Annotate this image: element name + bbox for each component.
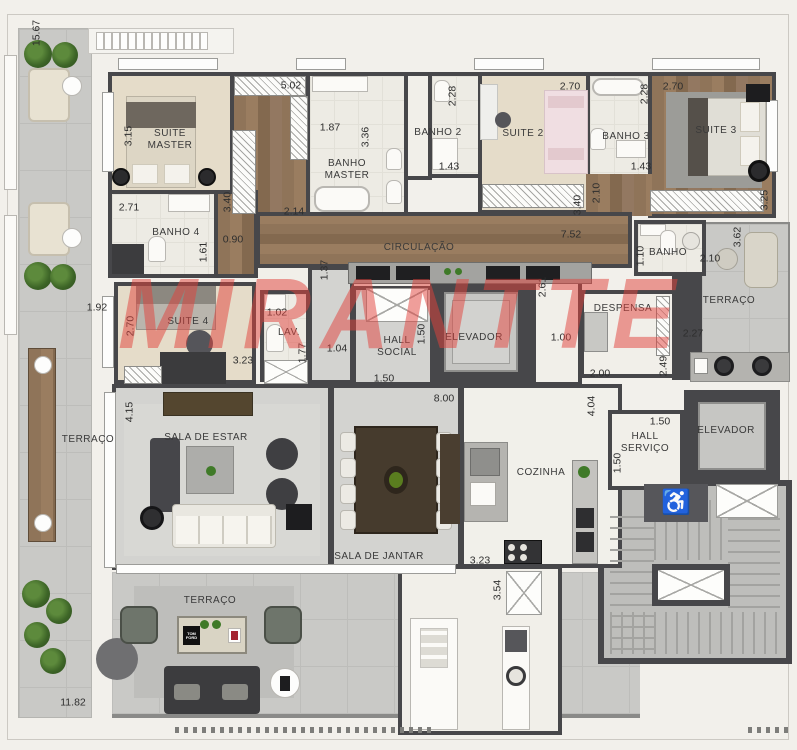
bed-suite-3-blanket [688,98,708,176]
cooktop-burner-4 [520,554,527,561]
stair-treads-bottom [610,612,780,654]
sideboard-item-4 [526,266,560,280]
lav-entry [260,268,308,290]
lounge-chair-1 [28,68,70,122]
toilet-lav [266,324,284,352]
shower-banho-5 [682,232,700,250]
shower-banho-4 [112,244,144,274]
wheelchair-accessible-icon: ♿ [661,491,691,515]
tv-sideboard-sala [163,392,253,416]
service-duct [506,571,542,615]
elevador-servico-car [698,402,766,470]
dining-centerpiece-plant [389,472,403,488]
vanity-banho-3 [616,140,646,158]
dining-chair-4 [340,510,356,530]
window-suite-2-top [474,58,544,70]
glass-door-sala-left [104,392,116,568]
elevador-social-car-inner [452,300,510,364]
left-planter-box-1 [4,55,17,190]
toilet-banho-4 [148,236,166,262]
toilet-banho-master [386,180,402,204]
left-planter-box-2 [4,215,17,335]
plant-8 [40,648,66,674]
sideboard-item-2 [396,266,430,280]
kitchen-island-board [470,482,496,506]
doormat-hall-social [366,288,428,322]
vanity-banho-4 [168,194,210,212]
wardrobe-suite-4 [124,366,162,384]
terrace-sofa-cushion-1 [174,684,200,700]
terrace-rail-dashes-2 [748,727,792,733]
sideboard-item-3 [486,266,520,280]
plant-5 [22,580,50,608]
ac-unit-grill [96,32,208,50]
coffee-table-book-label: TOM FORD [183,632,200,641]
doormat-lav [264,360,308,384]
hall-servico-floor [608,410,684,490]
coffee-table-plant-1 [200,620,209,629]
grill-sink [694,358,708,374]
window-suite-3-right [766,100,778,172]
kitchen-oven-2 [576,532,594,552]
accessibility-sign: ♿ [644,484,708,522]
kitchen-oven-1 [576,508,594,528]
dining-chair-2 [340,458,356,478]
terrace-rail-dashes-1 [175,727,435,733]
terrace-armchair-left [120,606,158,644]
wardrobe-closet-master-top [234,76,306,96]
plant-2 [52,42,78,68]
bed-suite-2-pillow-1 [548,96,584,108]
planter-bench [28,348,56,542]
shelves-despensa [656,296,670,356]
stair-landing-box [716,484,778,518]
wardrobe-closet-master-left [232,130,256,214]
cooktop-burner-2 [520,544,527,551]
vanity-banho-2 [432,138,458,170]
glass-door-sala-bottom [116,564,456,574]
round-planter-bottom [96,638,138,680]
cooktop-burner-1 [508,544,515,551]
bed-suite-2-pillow-2 [548,148,584,160]
toilet-banho-3 [590,128,606,150]
coffee-table-plant-2 [212,620,221,629]
terrace-right-lounger [744,232,778,288]
speaker-suite-master-1 [112,168,130,186]
kitchen-island-sink [470,448,500,476]
bed-suite-master-blanket [126,102,196,128]
circulacao-floor [256,212,632,268]
terrace-right-table [716,248,738,270]
window-suite-master-left [102,92,114,172]
speaker-suite-master-2 [198,168,216,186]
bed-suite-3-pillow-1 [740,102,760,132]
tv-box-sala [286,504,312,530]
sideboard-plant-2 [455,268,462,275]
buffet-jantar [440,434,460,524]
tv-corner-suite-3 [746,84,770,102]
bed-suite-master-pillow-2 [164,164,190,184]
planter-bench-pot-1 [34,356,52,374]
plant-6 [46,598,72,624]
stair-treads-right [728,516,780,608]
side-table-2 [62,228,82,248]
bathtub-banho-3 [592,78,644,96]
coffee-table-red-chair [231,631,238,640]
stair-void [652,564,730,606]
bathtub-banho-master [314,186,370,212]
speaker-suite-3 [748,160,770,182]
appliance-despensa [584,312,608,352]
lounge-chair-2 [28,202,70,256]
grill-burner-2 [752,356,772,376]
grill-burner-1 [714,356,734,376]
bed-suite-4-blanket [136,286,216,304]
bidet-banho-master [386,148,402,170]
plant-3 [24,262,52,290]
service-counter-a-items [420,628,448,668]
sideboard-item-1 [356,266,390,280]
wood-patch-suite3-entry [586,174,652,216]
wardrobe-closet-master-right [290,96,308,160]
desk-suite-4 [160,352,226,384]
toilet-banho-5 [660,230,676,254]
cooktop-burner-3 [508,554,515,561]
sink-lav [264,294,286,310]
planter-bench-pot-2 [34,514,52,532]
window-suite-3-top [652,58,760,70]
service-appliance-dark [505,630,527,652]
wardrobe-suite-2 [482,184,584,208]
washer-drum [506,666,526,686]
plant-1 [24,40,52,68]
toilet-banho-2 [434,80,450,102]
terrace-side-table-speaker [280,676,290,691]
window-banho-master-top [296,58,346,70]
window-suite-master-top [118,58,218,70]
wardrobe-suite-3 [650,190,764,212]
armchair-sala-1 [266,438,298,470]
floor-plan: ♿ TOM FORD SUITE MASTERBANHO MASTERBANHO… [0,0,797,750]
terrace-sofa-cushion-2 [222,684,248,700]
plant-7 [24,622,50,648]
kitchen-counter-plant [578,466,590,478]
dining-chair-3 [340,484,356,504]
sofa-sala-cushions [176,516,272,544]
chaise-sala [150,438,180,512]
terrace-armchair-right [264,606,302,644]
side-table-lamp-sala [140,506,164,530]
vanity-banho-master [312,76,368,92]
bed-suite-master-pillow-1 [132,164,158,184]
chair-suite-2 [495,112,511,128]
plant-4 [50,264,76,290]
side-table-1 [62,76,82,96]
sideboard-plant-1 [444,268,451,275]
dining-chair-1 [340,432,356,452]
window-suite-4-left [102,296,114,368]
fireplace-green-dot [206,466,216,476]
desk-suite-2 [480,84,498,140]
